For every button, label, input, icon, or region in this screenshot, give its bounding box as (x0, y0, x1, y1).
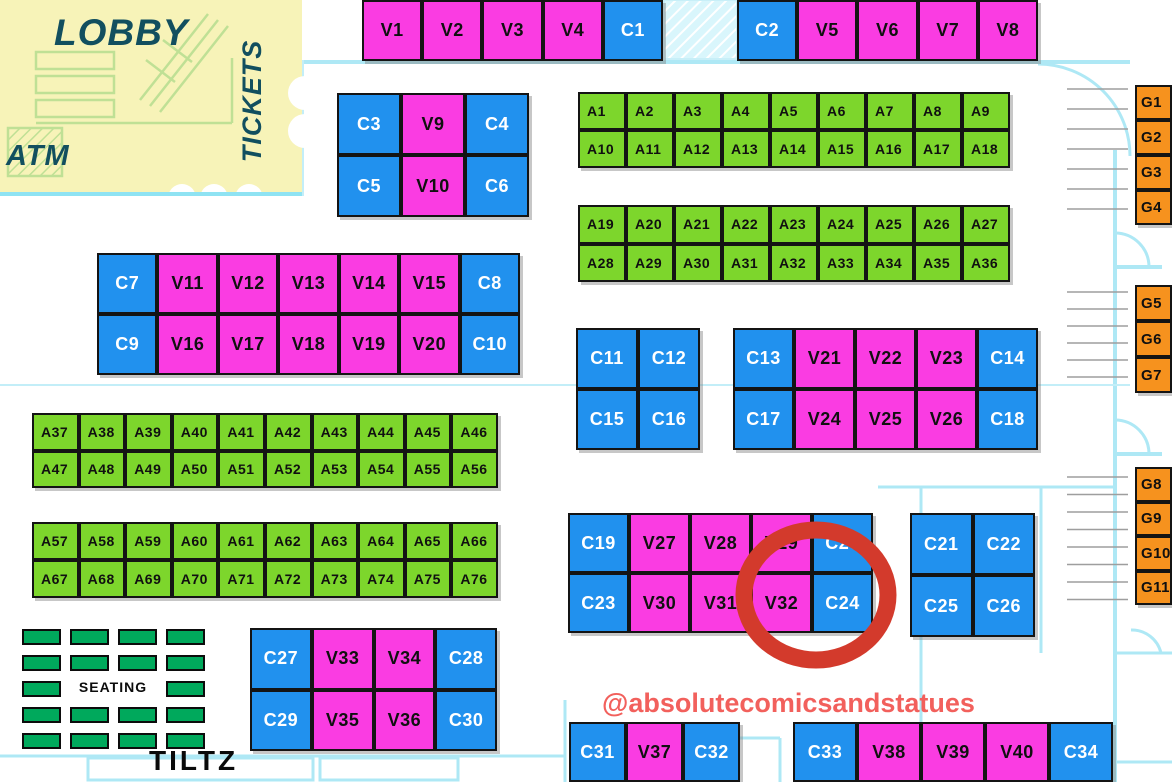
pillar-hatch (664, 0, 737, 59)
booth-v20: V20 (399, 314, 459, 375)
booth-a13: A13 (722, 130, 770, 168)
booth-c14: C14 (977, 328, 1038, 389)
booth-a43: A43 (312, 413, 359, 451)
stairs-lines (1067, 89, 1128, 600)
booth-a9: A9 (962, 92, 1010, 130)
booth-c19: C19 (568, 513, 629, 573)
booth-a63: A63 (312, 522, 359, 560)
booth-a65: A65 (405, 522, 452, 560)
booth-a12: A12 (674, 130, 722, 168)
booth-c21: C21 (910, 513, 973, 575)
booth-block-a57-a76: A57A58A59A60A61A62A63A64A65A66A67A68A69A… (32, 522, 498, 598)
booth-a24: A24 (818, 205, 866, 244)
booth-c8: C8 (460, 253, 520, 314)
seating-table (166, 681, 205, 697)
booth-v34: V34 (374, 628, 436, 690)
booth-v40: V40 (985, 722, 1049, 782)
booth-g1: G1 (1135, 85, 1172, 120)
seating-table (22, 733, 61, 749)
booth-a34: A34 (866, 244, 914, 283)
booth-a76: A76 (451, 560, 498, 598)
booth-c6: C6 (465, 155, 529, 217)
booth-c22: C22 (973, 513, 1036, 575)
booth-v33: V33 (312, 628, 374, 690)
booth-c15: C15 (576, 389, 638, 450)
booth-c3: C3 (337, 93, 401, 155)
booth-a28: A28 (578, 244, 626, 283)
booth-c20: C20 (812, 513, 873, 573)
booth-c2: C2 (737, 0, 797, 61)
booth-a6: A6 (818, 92, 866, 130)
booth-a5: A5 (770, 92, 818, 130)
booth-a8: A8 (914, 92, 962, 130)
booth-v14: V14 (339, 253, 399, 314)
booth-a30: A30 (674, 244, 722, 283)
seating-table (118, 629, 157, 645)
booth-a33: A33 (818, 244, 866, 283)
booth-a32: A32 (770, 244, 818, 283)
booth-g6: G6 (1135, 321, 1172, 357)
booth-v12: V12 (218, 253, 278, 314)
booth-g9: G9 (1135, 502, 1172, 537)
booth-a75: A75 (405, 560, 452, 598)
booth-a60: A60 (172, 522, 219, 560)
booth-v11: V11 (157, 253, 217, 314)
booth-a71: A71 (218, 560, 265, 598)
booth-a36: A36 (962, 244, 1010, 283)
booth-v8: V8 (978, 0, 1038, 61)
booth-v39: V39 (921, 722, 985, 782)
booth-v24: V24 (794, 389, 855, 450)
booth-a22: A22 (722, 205, 770, 244)
booth-v4: V4 (543, 0, 603, 61)
booth-c18: C18 (977, 389, 1038, 450)
booth-a58: A58 (79, 522, 126, 560)
booth-a18: A18 (962, 130, 1010, 168)
booth-a21: A21 (674, 205, 722, 244)
booth-c4: C4 (465, 93, 529, 155)
booth-block-c31-v37: C31V37C32 (569, 722, 740, 782)
booth-c29: C29 (250, 690, 312, 752)
booth-a49: A49 (125, 451, 172, 489)
booth-a57: A57 (32, 522, 79, 560)
booth-c11: C11 (576, 328, 638, 389)
booth-a50: A50 (172, 451, 219, 489)
booth-v13: V13 (278, 253, 338, 314)
booth-a20: A20 (626, 205, 674, 244)
lobby-area: LOBBY TICKETS ATM (0, 0, 310, 200)
seating-table (118, 707, 157, 723)
seating-table (70, 707, 109, 723)
booth-c24: C24 (812, 573, 873, 633)
booth-c30: C30 (435, 690, 497, 752)
booth-v2: V2 (422, 0, 482, 61)
booth-c26: C26 (973, 575, 1036, 637)
booth-block-top-left-row: V1V2V3V4C1 (362, 0, 663, 61)
booth-a7: A7 (866, 92, 914, 130)
booth-v36: V36 (374, 690, 436, 752)
booth-v3: V3 (482, 0, 542, 61)
booth-v32: V32 (751, 573, 812, 633)
booth-v23: V23 (916, 328, 977, 389)
booth-a27: A27 (962, 205, 1010, 244)
booth-a15: A15 (818, 130, 866, 168)
booth-c17: C17 (733, 389, 794, 450)
booth-v29: V29 (751, 513, 812, 573)
seating-table (166, 707, 205, 723)
booth-a23: A23 (770, 205, 818, 244)
booth-v7: V7 (918, 0, 978, 61)
booth-v30: V30 (629, 573, 690, 633)
booth-c10: C10 (460, 314, 520, 375)
booth-a67: A67 (32, 560, 79, 598)
booth-g5: G5 (1135, 285, 1172, 321)
booth-a64: A64 (358, 522, 405, 560)
booth-v15: V15 (399, 253, 459, 314)
booth-a56: A56 (451, 451, 498, 489)
booth-block-c11-c16: C11C12C15C16 (576, 328, 700, 450)
convention-floor-map: LOBBY TICKETS ATM V1V2V3V4C1C2V5V6V7V8C3… (0, 0, 1172, 782)
booth-a44: A44 (358, 413, 405, 451)
booth-v25: V25 (855, 389, 916, 450)
booth-a29: A29 (626, 244, 674, 283)
booth-v5: V5 (797, 0, 857, 61)
seating-table (22, 629, 61, 645)
booth-g11: G11 (1135, 571, 1172, 606)
booth-block-g5-g7: G5G6G7 (1135, 285, 1172, 393)
booth-a1: A1 (578, 92, 626, 130)
booth-v10: V10 (401, 155, 465, 217)
booth-a26: A26 (914, 205, 962, 244)
booth-a61: A61 (218, 522, 265, 560)
seating-table (22, 655, 61, 671)
booth-block-a19-a36: A19A20A21A22A23A24A25A26A27A28A29A30A31A… (578, 205, 1010, 282)
booth-c12: C12 (638, 328, 700, 389)
booth-a31: A31 (722, 244, 770, 283)
booth-a42: A42 (265, 413, 312, 451)
booth-block-top-right-row: C2V5V6V7V8 (737, 0, 1038, 61)
booth-block-a37-a56: A37A38A39A40A41A42A43A44A45A46A47A48A49A… (32, 413, 498, 488)
watermark-handle: @absolutecomicsandstatues (602, 688, 975, 719)
seating-table (22, 681, 61, 697)
booth-a39: A39 (125, 413, 172, 451)
booth-block-c19-v27: C19V27V28V29C20C23V30V31V32C24 (568, 513, 873, 633)
booth-c28: C28 (435, 628, 497, 690)
booth-a51: A51 (218, 451, 265, 489)
booth-v17: V17 (218, 314, 278, 375)
booth-g7: G7 (1135, 357, 1172, 393)
booth-a17: A17 (914, 130, 962, 168)
atm-label: ATM (6, 140, 70, 173)
booth-a35: A35 (914, 244, 962, 283)
booth-v19: V19 (339, 314, 399, 375)
booth-c27: C27 (250, 628, 312, 690)
booth-g3: G3 (1135, 155, 1172, 190)
booth-a37: A37 (32, 413, 79, 451)
booth-a62: A62 (265, 522, 312, 560)
booth-c1: C1 (603, 0, 663, 61)
booth-a69: A69 (125, 560, 172, 598)
seating-table (22, 707, 61, 723)
booth-block-g8-g11: G8G9G10G11 (1135, 467, 1172, 605)
booth-v38: V38 (857, 722, 921, 782)
booth-c13: C13 (733, 328, 794, 389)
booth-a14: A14 (770, 130, 818, 168)
seating-table (70, 733, 109, 749)
booth-a40: A40 (172, 413, 219, 451)
booth-g2: G2 (1135, 120, 1172, 155)
booth-a2: A2 (626, 92, 674, 130)
booth-c5: C5 (337, 155, 401, 217)
booth-v1: V1 (362, 0, 422, 61)
booth-block-c21-c26: C21C22C25C26 (910, 513, 1035, 637)
booth-g4: G4 (1135, 190, 1172, 225)
booth-c34: C34 (1049, 722, 1113, 782)
booth-block-c13-v21: C13V21V22V23C14C17V24V25V26C18 (733, 328, 1038, 450)
booth-a38: A38 (79, 413, 126, 451)
booth-v22: V22 (855, 328, 916, 389)
booth-a11: A11 (626, 130, 674, 168)
booth-a10: A10 (578, 130, 626, 168)
booth-a47: A47 (32, 451, 79, 489)
booth-c16: C16 (638, 389, 700, 450)
booth-a74: A74 (358, 560, 405, 598)
booth-a16: A16 (866, 130, 914, 168)
booth-g8: G8 (1135, 467, 1172, 502)
booth-v35: V35 (312, 690, 374, 752)
seating-table (70, 655, 109, 671)
booth-a45: A45 (405, 413, 452, 451)
booth-a54: A54 (358, 451, 405, 489)
seating-table (166, 655, 205, 671)
booth-v27: V27 (629, 513, 690, 573)
booth-a41: A41 (218, 413, 265, 451)
booth-v37: V37 (626, 722, 683, 782)
booth-a46: A46 (451, 413, 498, 451)
lobby-label: LOBBY (54, 12, 189, 54)
booth-a66: A66 (451, 522, 498, 560)
booth-v18: V18 (278, 314, 338, 375)
booth-v9: V9 (401, 93, 465, 155)
booth-a3: A3 (674, 92, 722, 130)
booth-a70: A70 (172, 560, 219, 598)
booth-c31: C31 (569, 722, 626, 782)
booth-v6: V6 (857, 0, 917, 61)
booth-g10: G10 (1135, 536, 1172, 571)
booth-c7: C7 (97, 253, 157, 314)
booth-c25: C25 (910, 575, 973, 637)
booth-block-g1-g4: G1G2G3G4 (1135, 85, 1172, 225)
booth-a4: A4 (722, 92, 770, 130)
booth-v21: V21 (794, 328, 855, 389)
booth-block-c27-v33: C27V33V34C28C29V35V36C30 (250, 628, 497, 751)
booth-a55: A55 (405, 451, 452, 489)
booth-block-a1-a18: A1A2A3A4A5A6A7A8A9A10A11A12A13A14A15A16A… (578, 92, 1010, 168)
booth-a53: A53 (312, 451, 359, 489)
booth-v31: V31 (690, 573, 751, 633)
tiltz-label: TILTZ (149, 745, 238, 777)
seating-table (166, 629, 205, 645)
booth-c9: C9 (97, 314, 157, 375)
booth-v26: V26 (916, 389, 977, 450)
booth-a25: A25 (866, 205, 914, 244)
booth-c32: C32 (683, 722, 740, 782)
booth-c23: C23 (568, 573, 629, 633)
booth-a52: A52 (265, 451, 312, 489)
seating-label: SEATING (74, 679, 152, 695)
booth-a72: A72 (265, 560, 312, 598)
tickets-label: TICKETS (237, 31, 267, 171)
booth-a68: A68 (79, 560, 126, 598)
booth-a48: A48 (79, 451, 126, 489)
booth-block-c3-v9: C3V9C4C5V10C6 (337, 93, 529, 217)
booth-block-c33-v38: C33V38V39V40C34 (793, 722, 1113, 782)
booth-a73: A73 (312, 560, 359, 598)
booth-a19: A19 (578, 205, 626, 244)
booth-v16: V16 (157, 314, 217, 375)
seating-table (70, 629, 109, 645)
seating-table (118, 655, 157, 671)
booth-c33: C33 (793, 722, 857, 782)
booth-v28: V28 (690, 513, 751, 573)
booth-block-c7-v11: C7V11V12V13V14V15C8C9V16V17V18V19V20C10 (97, 253, 520, 375)
booth-a59: A59 (125, 522, 172, 560)
